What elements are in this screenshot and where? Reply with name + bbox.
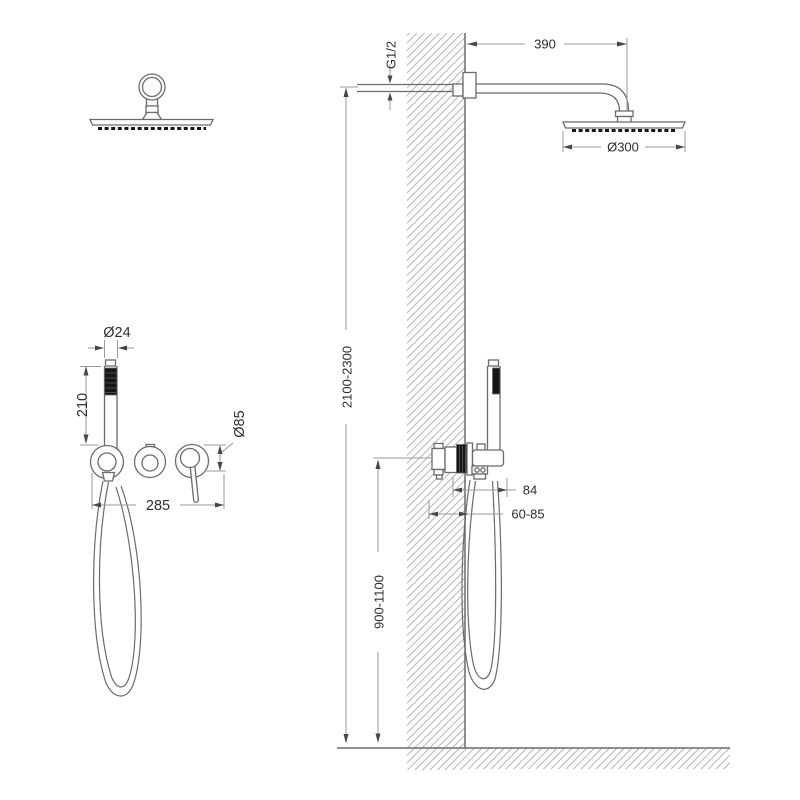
rain-head-front-view (90, 74, 213, 129)
hose-nut-lower (474, 474, 486, 479)
dim-arm-length: 390 (467, 37, 627, 113)
drawing-canvas: 390 G1/2 Ø300 2100-2300 (0, 0, 800, 800)
rain-head-side-view (357, 73, 685, 131)
shower-arm (476, 84, 629, 111)
dim-holder-offset-label: 84 (523, 483, 537, 498)
head-connector-nut-top (616, 111, 634, 117)
dim-handle-length: 210 (75, 366, 101, 445)
handshower-front-view (91, 360, 209, 696)
wall-hatch (407, 33, 465, 770)
wall-section (337, 33, 730, 770)
hose-connector (103, 473, 115, 482)
pipe-coupler (453, 84, 463, 96)
technical-drawing: 390 G1/2 Ø300 2100-2300 (0, 0, 800, 800)
dim-handle-diameter-label: Ø24 (103, 325, 130, 341)
valve-body-mid (445, 447, 457, 473)
dim-rough-in-depth-label: 60-85 (511, 507, 544, 522)
handshower-knurl (105, 368, 118, 395)
dim-install-height-label: 2100-2300 (340, 346, 355, 408)
dim-trim-diameter-label: Ø85 (232, 410, 248, 437)
dim-head-diameter-label: Ø300 (607, 140, 639, 155)
handshower-knurl-side (493, 368, 501, 394)
hose-side-inner (468, 481, 496, 679)
dim-thread: G1/2 (384, 41, 399, 110)
floor-hatch (465, 748, 730, 769)
dim-trim-spacing-label: 285 (146, 498, 170, 514)
handshower-cap (106, 360, 116, 366)
valve-tab-top (434, 444, 443, 449)
handshower-cap-side (489, 360, 499, 366)
head-plate-side (563, 122, 685, 128)
valve-stub (437, 475, 443, 479)
head-cone (143, 113, 162, 120)
valve-body-rear (432, 449, 445, 470)
handshower-holder (473, 450, 504, 466)
dim-head-diameter: Ø300 (563, 131, 685, 155)
dim-install-height: 2100-2300 (340, 87, 359, 744)
hose-front-inner (99, 482, 135, 687)
dim-handle-diameter: Ø24 (88, 325, 134, 358)
mixer-trim-inner (181, 449, 200, 468)
wall-flange (463, 73, 476, 99)
dim-thread-label: G1/2 (384, 41, 399, 69)
arm-flange-inner (143, 78, 162, 97)
valve-tab-bottom (434, 470, 443, 476)
dim-valve-height-label: 900-1100 (372, 575, 387, 629)
diverter-trim-outer (135, 447, 166, 478)
dim-arm-length-label: 390 (534, 37, 556, 52)
dim-handle-length-label: 210 (75, 393, 91, 417)
dim-trim-diameter: Ø85 (204, 410, 248, 471)
arm-nut (146, 106, 158, 113)
head-plate (90, 120, 213, 126)
